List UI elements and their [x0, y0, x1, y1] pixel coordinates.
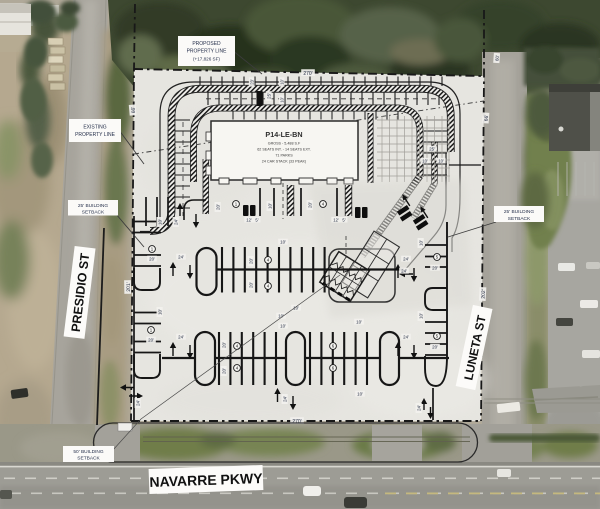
svg-text:P14-LE-BN: P14-LE-BN	[265, 130, 302, 139]
svg-text:20': 20'	[216, 204, 221, 210]
svg-text:23': 23'	[250, 79, 255, 85]
svg-text:PROPOSED: PROPOSED	[192, 41, 221, 47]
svg-text:25': 25'	[429, 147, 435, 152]
svg-text:24': 24'	[403, 335, 409, 340]
svg-text:24': 24'	[403, 257, 409, 262]
svg-text:24 CAR STACK (33 PEAK): 24 CAR STACK (33 PEAK)	[262, 160, 306, 164]
svg-text:10': 10'	[280, 97, 285, 103]
svg-text:(+17,826 SF): (+17,826 SF)	[193, 57, 220, 62]
svg-text:25': 25'	[267, 93, 272, 99]
svg-text:20': 20'	[432, 345, 438, 350]
svg-text:270': 270'	[303, 71, 312, 77]
svg-text:24': 24'	[178, 255, 184, 260]
svg-text:20': 20'	[149, 257, 155, 262]
svg-text:60': 60'	[495, 55, 500, 61]
svg-text:10': 10'	[419, 313, 424, 319]
svg-text:PROPERTY LINE: PROPERTY LINE	[75, 132, 115, 138]
svg-text:10': 10'	[280, 240, 286, 245]
svg-text:202': 202'	[481, 289, 487, 299]
svg-text:20': 20'	[432, 266, 438, 271]
svg-text:10': 10'	[158, 219, 163, 225]
svg-text:EXISTING: EXISTING	[83, 125, 106, 131]
svg-text:24': 24'	[283, 396, 288, 402]
svg-text:24': 24'	[417, 405, 422, 411]
svg-text:20': 20'	[148, 338, 154, 343]
svg-text:50' BUILDING: 50' BUILDING	[73, 449, 104, 455]
svg-text:20': 20'	[249, 258, 254, 264]
svg-text:201': 201'	[126, 282, 132, 291]
svg-text:10': 10'	[280, 79, 285, 85]
svg-text:20': 20'	[308, 202, 313, 208]
svg-text:5': 5'	[342, 218, 345, 223]
svg-text:24': 24'	[401, 269, 407, 274]
svg-text:SETBACK: SETBACK	[82, 210, 105, 216]
svg-text:20': 20'	[222, 342, 227, 348]
svg-text:25' BUILDING: 25' BUILDING	[78, 203, 109, 209]
svg-text:5': 5'	[255, 218, 258, 223]
svg-text:20': 20'	[249, 282, 254, 288]
svg-text:SETBACK: SETBACK	[77, 456, 100, 462]
svg-text:10': 10'	[268, 203, 273, 209]
svg-text:25' BUILDING: 25' BUILDING	[504, 209, 535, 215]
svg-text:GROSS - 5,488 S.F: GROSS - 5,488 S.F	[268, 142, 301, 146]
svg-text:62 SEATS INT. - 14 SEATS EXT.: 62 SEATS INT. - 14 SEATS EXT.	[257, 148, 311, 152]
svg-text:10': 10'	[158, 309, 163, 315]
svg-text:10': 10'	[438, 159, 444, 164]
svg-text:71 PARKS: 71 PARKS	[275, 154, 293, 158]
svg-text:SETBACK: SETBACK	[508, 216, 531, 222]
svg-text:PROPERTY LINE: PROPERTY LINE	[187, 49, 227, 55]
svg-text:10': 10'	[357, 392, 363, 397]
svg-text:12': 12'	[246, 218, 252, 223]
svg-text:10': 10'	[280, 324, 286, 329]
svg-text:24': 24'	[178, 335, 184, 340]
svg-text:24': 24'	[174, 219, 179, 225]
svg-text:10': 10'	[356, 320, 362, 325]
svg-text:12': 12'	[333, 218, 339, 223]
svg-text:24': 24'	[136, 400, 141, 406]
svg-text:270': 270'	[292, 419, 301, 425]
svg-text:66': 66'	[484, 115, 490, 122]
svg-text:66': 66'	[131, 106, 138, 113]
svg-text:10': 10'	[422, 159, 428, 164]
svg-text:20': 20'	[222, 368, 227, 374]
svg-text:10': 10'	[419, 240, 424, 246]
